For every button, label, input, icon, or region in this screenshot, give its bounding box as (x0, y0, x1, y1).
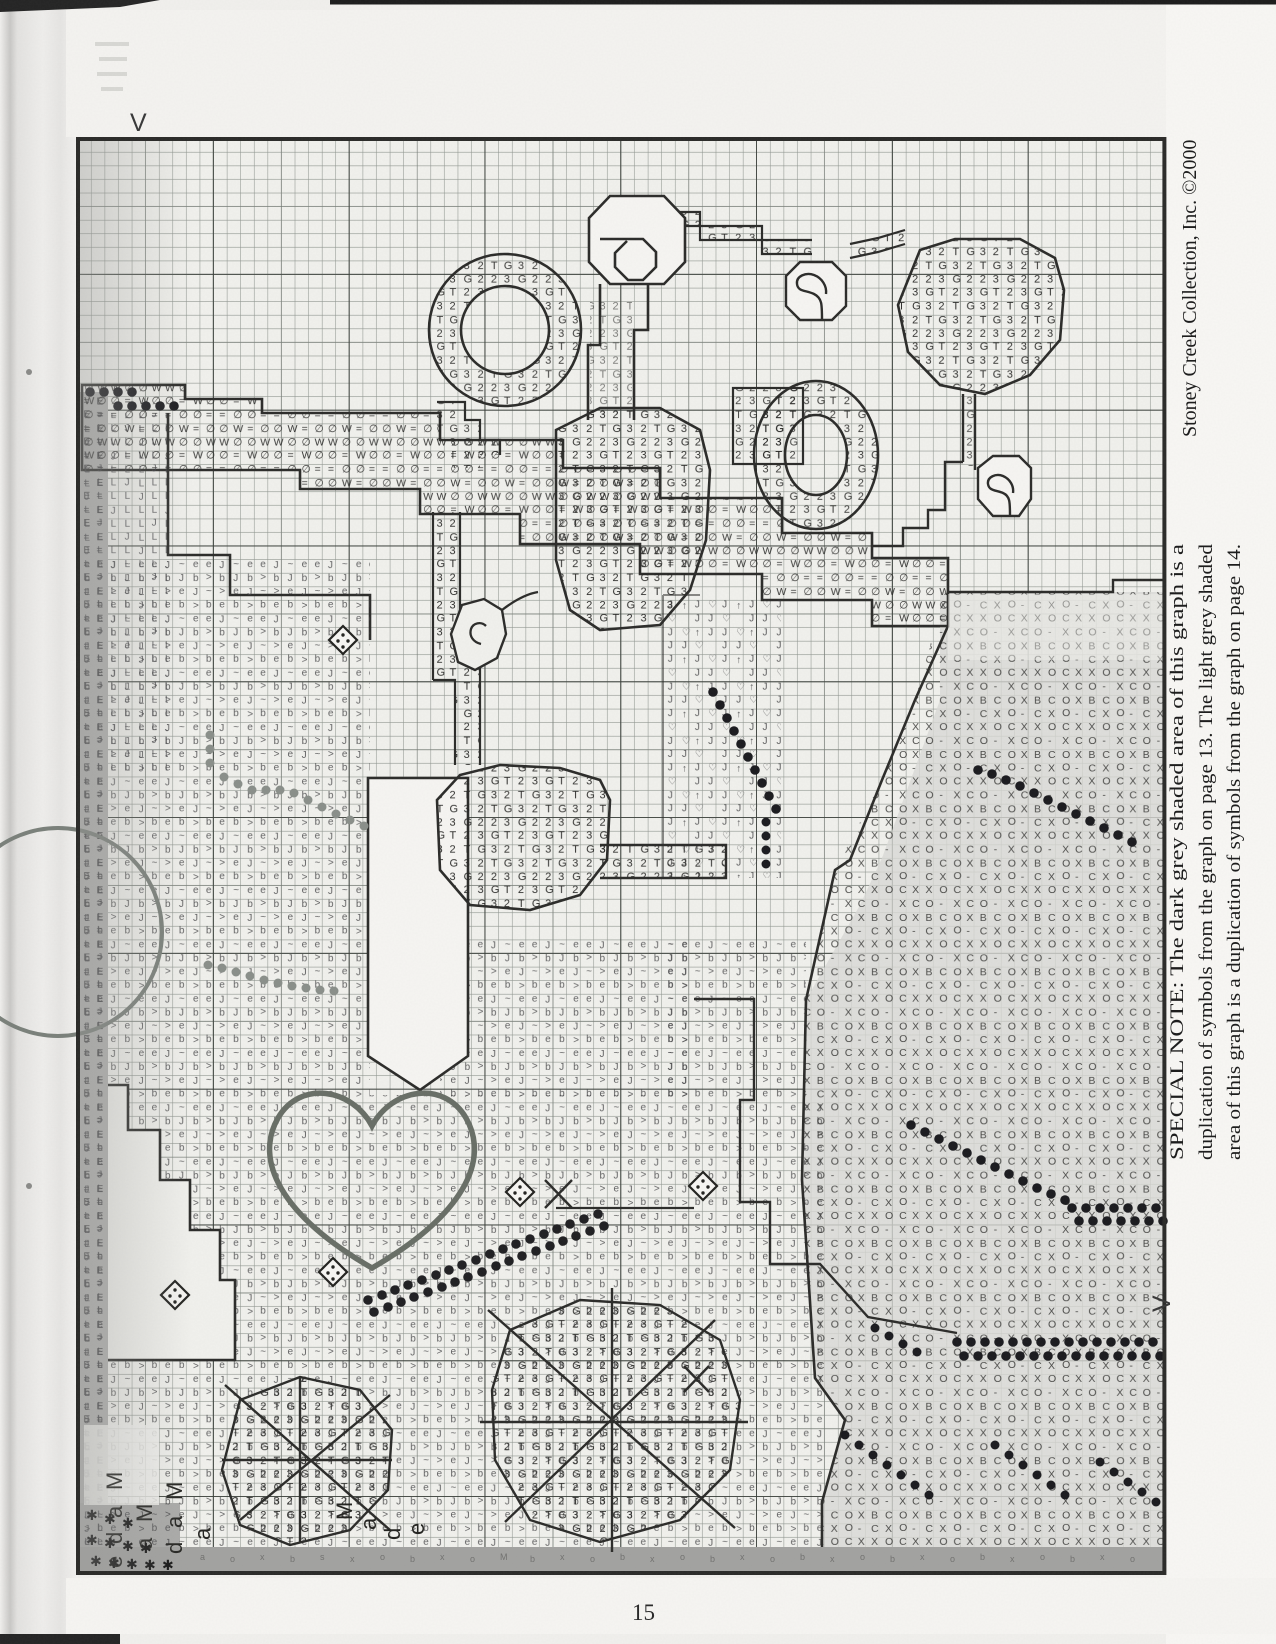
svg-text:Stoney Creek Collection, Inc.: Stoney Creek Collection, Inc. ©2000 (1179, 140, 1201, 437)
svg-text:duplication of symbols from th: duplication of symbols from the graph on… (1197, 543, 1217, 1160)
svg-text:SPECIAL NOTE: The dark grey sh: SPECIAL NOTE: The dark grey shaded area … (1168, 544, 1188, 1160)
svg-text:V: V (130, 109, 147, 137)
svg-text:15: 15 (632, 1600, 655, 1625)
svg-text:V: V (1148, 1295, 1176, 1312)
svg-text:area of this graph is a duplic: area of this graph is a duplication of s… (1225, 544, 1245, 1160)
